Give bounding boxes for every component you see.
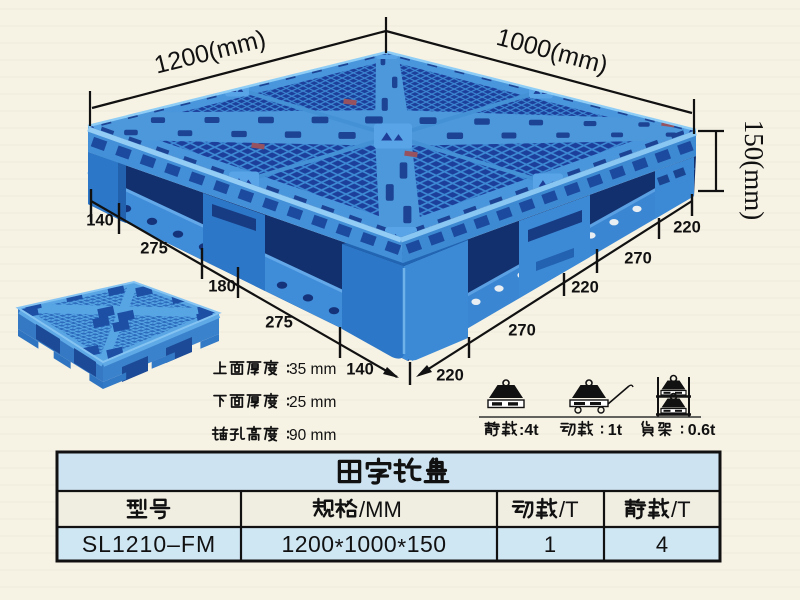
svg-text:1200*1000*150: 1200*1000*150 (281, 531, 446, 560)
svg-text:/T: /T (559, 497, 579, 522)
svg-text:1: 1 (544, 532, 556, 557)
svg-text:270: 270 (624, 249, 652, 267)
svg-text:SL1210–FM: SL1210–FM (82, 531, 216, 557)
svg-text:220: 220 (436, 366, 464, 384)
svg-text:35 mm: 35 mm (289, 361, 336, 378)
svg-text:275: 275 (265, 313, 293, 331)
svg-text:1t: 1t (608, 422, 623, 439)
svg-text:220: 220 (571, 278, 599, 296)
svg-text:180: 180 (208, 277, 236, 295)
svg-text:270: 270 (508, 321, 536, 339)
svg-text::4t: :4t (519, 422, 539, 439)
svg-text:90 mm: 90 mm (289, 427, 336, 444)
svg-text:140: 140 (346, 360, 374, 378)
svg-text:4: 4 (656, 532, 668, 557)
svg-text:140: 140 (86, 211, 114, 229)
svg-text:150(mm): 150(mm) (739, 120, 769, 221)
svg-text:25 mm: 25 mm (289, 394, 336, 411)
svg-text:0.6t: 0.6t (688, 422, 716, 439)
svg-text:/T: /T (671, 497, 691, 522)
svg-text:/MM: /MM (359, 497, 402, 522)
svg-text:220: 220 (673, 218, 701, 236)
svg-text:275: 275 (140, 239, 168, 257)
